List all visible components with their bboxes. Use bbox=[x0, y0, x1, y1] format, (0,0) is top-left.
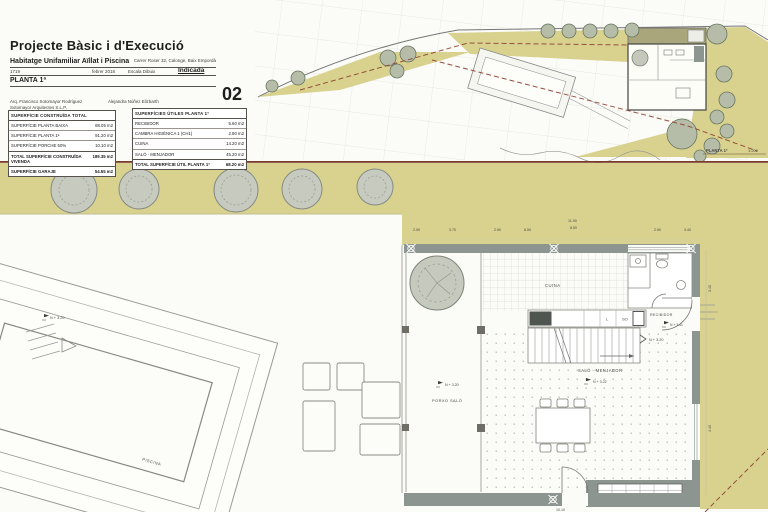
project-subtitle: Habitatge Unifamiliar Aïllat i Piscina bbox=[10, 58, 129, 65]
porch-columns bbox=[402, 326, 485, 432]
sheet-name: PLANTA 1ª bbox=[10, 77, 46, 84]
kitchen-floor bbox=[482, 253, 628, 311]
svg-text:11.90: 11.90 bbox=[568, 219, 577, 223]
studio-name: Sotomayor Arquitectes S.L.P. bbox=[10, 105, 67, 110]
scale-label: Escala Dibuix bbox=[128, 69, 155, 74]
kitchen-counter: L SO bbox=[528, 310, 646, 327]
terrace-furniture bbox=[303, 363, 400, 455]
svg-text:2.90: 2.90 bbox=[413, 228, 420, 232]
site-caption-scale: 1:200 bbox=[748, 148, 759, 153]
svg-text:2.90: 2.90 bbox=[494, 228, 501, 232]
sheet-number: 02 bbox=[200, 84, 242, 105]
svg-text:8.50: 8.50 bbox=[570, 226, 577, 230]
level-flag-recibidor bbox=[662, 321, 669, 327]
patio-tree bbox=[410, 256, 464, 310]
level-label-salo: N + 3.22 bbox=[593, 380, 607, 384]
pool-terrace: PISCINA N + 3.20 bbox=[0, 255, 278, 512]
svg-text:3.70: 3.70 bbox=[449, 228, 456, 232]
project-address: Carrer Roser 32, Calonge, Baix Empordà bbox=[120, 58, 216, 63]
useful-area-table: SUPERFÍCIES ÚTILES PLANTA 1ª RECIBIDOR5.… bbox=[132, 108, 247, 170]
floor-plan: L SO N + 3.20 bbox=[402, 219, 718, 512]
architect-name-2: Alejandra Núñez Elizbarth bbox=[108, 99, 159, 104]
scale-value: Indicada bbox=[178, 67, 204, 74]
table-row: SUPERFÍCIE PLANTA 1ª91.20 m2 bbox=[9, 130, 115, 140]
project-code: 1719 bbox=[10, 69, 20, 74]
site-house bbox=[628, 44, 706, 110]
svg-text:3.40: 3.40 bbox=[684, 228, 691, 232]
title-rule-2 bbox=[10, 75, 216, 76]
project-date: febrer 2018 bbox=[92, 69, 115, 74]
room-label-salo: SALÓ - MENJADOR bbox=[578, 368, 622, 373]
architect-name-1: Arq. Francisco Sotomayor Rodríguez bbox=[10, 99, 82, 104]
level-label-stair: N + 3.20 bbox=[649, 338, 663, 342]
built-area-table-header: SUPERFÍCIE CONSTRUÏDA TOTAL bbox=[9, 111, 115, 121]
room-label-porxo: PORXO SALÓ bbox=[432, 398, 462, 403]
table-row: RECIBIDOR5.60 m2 bbox=[133, 119, 246, 128]
dining-set bbox=[536, 399, 590, 452]
table-row: CAMBRA HIGIÈNICA 1 (CH1)2.80 m2 bbox=[133, 128, 246, 138]
level-label-porch: N + 3.20 bbox=[445, 383, 459, 387]
table-row: SUPERFÍCIE PORCHE 50%10.10 m2 bbox=[9, 140, 115, 150]
table-row-total: TOTAL SUPERFÍCIE ÚTIL PLANTA 1ª68.20 m2 bbox=[133, 159, 246, 169]
site-caption: PLANTA 1ª bbox=[706, 148, 728, 153]
table-row: SUPERFÍCIE PLANTA BAIXA88.05 m2 bbox=[9, 121, 115, 130]
drawing-sheet: PLANTA 1ª 1:200 bbox=[0, 0, 768, 512]
room-label-recibidor: RECIBIDOR bbox=[650, 313, 673, 317]
title-rule-3 bbox=[10, 86, 216, 87]
svg-text:2.90: 2.90 bbox=[654, 228, 661, 232]
svg-text:4.40: 4.40 bbox=[708, 425, 712, 432]
room-label-cuina: CUINA bbox=[545, 283, 561, 288]
appliance-label-oven: SO bbox=[622, 317, 628, 322]
level-label-pool: N + 3.20 bbox=[50, 316, 64, 320]
svg-text:8.50: 8.50 bbox=[524, 228, 531, 232]
table-row: SALÓ - MENJADOR45.20 m2 bbox=[133, 149, 246, 159]
plan-canvas: PLANTA 1ª 1:200 bbox=[0, 0, 768, 512]
built-area-table: SUPERFÍCIE CONSTRUÏDA TOTAL SUPERFÍCIE P… bbox=[8, 110, 116, 177]
svg-text:3.40: 3.40 bbox=[708, 285, 712, 292]
site-garage-detail bbox=[688, 30, 704, 42]
table-row: SUPERFÍCIE GARAJE54.55 m2 bbox=[9, 166, 115, 176]
level-label-recibidor: N + 3.41 bbox=[670, 323, 683, 327]
project-title: Projecte Bàsic i d'Execució bbox=[10, 38, 184, 53]
site-plan: PLANTA 1ª 1:200 bbox=[255, 0, 768, 163]
useful-area-table-header: SUPERFÍCIES ÚTILES PLANTA 1ª bbox=[133, 109, 246, 119]
table-row-total: TOTAL SUPERFÍCIE CONSTRUÏDA VIVENDA189.3… bbox=[9, 151, 115, 166]
level-flag-porch bbox=[436, 381, 443, 387]
svg-text:10.10: 10.10 bbox=[556, 508, 565, 512]
bathroom bbox=[628, 253, 692, 308]
table-row: CUINA14.20 m2 bbox=[133, 138, 246, 148]
